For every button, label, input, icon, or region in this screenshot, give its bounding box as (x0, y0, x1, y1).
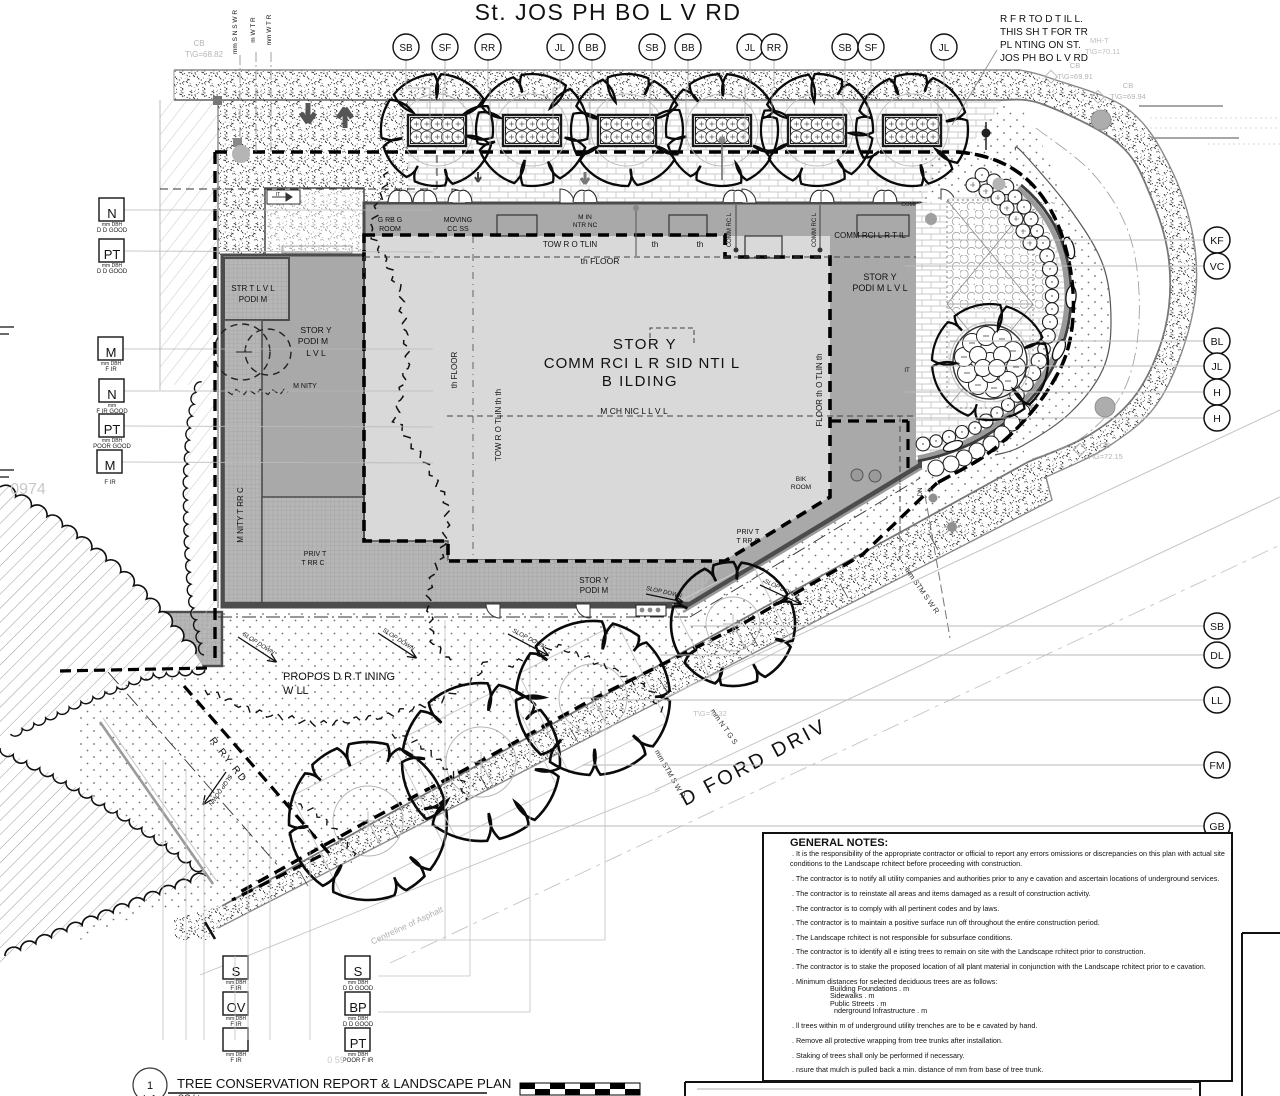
svg-text:NTR NC: NTR NC (573, 222, 598, 229)
svg-text:F IR: F IR (230, 1058, 242, 1064)
svg-text:RR: RR (481, 43, 495, 54)
svg-text:T\G=68.82: T\G=68.82 (185, 50, 224, 59)
svg-text:BP: BP (349, 1000, 366, 1015)
svg-text:KF: KF (1210, 235, 1223, 247)
svg-text:. nsure that mulch is pulled: . nsure that mulch is pulled back a min.… (792, 1065, 1043, 1074)
svg-text:T\G=7 .32: T\G=7 .32 (693, 709, 727, 718)
svg-text:BL: BL (1211, 336, 1224, 348)
svg-text:F IR: F IR (105, 367, 117, 373)
svg-text:1: 1 (147, 1080, 153, 1092)
svg-text:CB: CB (193, 39, 204, 48)
svg-text:nderground Infrastructure .: nderground Infrastructure . m (834, 1006, 927, 1015)
svg-text:. The contractor is to maintai: . The contractor is to maintain a positi… (792, 918, 1100, 927)
svg-text:RR: RR (767, 43, 781, 54)
svg-text:D D GOOD: D D GOOD (343, 986, 374, 992)
svg-text:PODI M: PODI M (298, 336, 328, 346)
svg-text:CB: CB (1100, 441, 1110, 450)
svg-text:T\G=69.94: T\G=69.94 (1110, 92, 1146, 101)
svg-text:. The contractor is to stake t: . The contractor is to stake the propose… (792, 962, 1206, 971)
svg-text:PRIV T: PRIV T (737, 529, 760, 536)
svg-text:STOR Y: STOR Y (613, 336, 677, 353)
svg-text:PODI M: PODI M (239, 295, 268, 304)
svg-text:mm S N S W R: mm S N S W R (232, 10, 239, 54)
svg-text:D D GOOD: D D GOOD (97, 269, 128, 275)
svg-text:COMM RC L: COMM RC L (812, 212, 818, 247)
svg-text:T RR C: T RR C (301, 560, 324, 567)
svg-text:th: th (697, 240, 704, 249)
svg-text:D D GOOD: D D GOOD (343, 1022, 374, 1028)
svg-text:F IR: F IR (230, 986, 242, 992)
svg-text:MOVING: MOVING (444, 217, 472, 224)
svg-text:. It is the responsibility of: . It is the responsibility of the approp… (792, 849, 1225, 858)
svg-text:. The contractor is to notify: . The contractor is to notify all utilit… (792, 874, 1219, 883)
svg-text:PROPOS D R T INING: PROPOS D R T INING (283, 671, 395, 683)
svg-text:JL: JL (939, 43, 950, 54)
svg-text:SB: SB (645, 43, 659, 54)
svg-text:T RR C: T RR C (736, 538, 759, 545)
svg-text:PODI M L V L: PODI M L V L (852, 283, 907, 293)
svg-text:F IR: F IR (230, 1022, 242, 1028)
svg-text:PT: PT (350, 1036, 367, 1051)
svg-text:M NITY: M NITY (293, 383, 317, 390)
svg-text:S: S (232, 964, 241, 979)
svg-text:SB: SB (838, 43, 852, 54)
svg-text:W LL: W LL (283, 685, 309, 697)
svg-text:T\G=72.15: T\G=72.15 (1087, 452, 1123, 461)
svg-text:. The contractor is to identif: . The contractor is to identify all e is… (792, 947, 1145, 956)
svg-text:SB: SB (1210, 621, 1224, 633)
svg-text:SF: SF (865, 43, 878, 54)
svg-text:M IN: M IN (578, 214, 592, 221)
svg-text:SF: SF (439, 43, 452, 54)
svg-text:STOR Y: STOR Y (863, 272, 896, 282)
svg-text:. Remove all protective wrappi: . Remove all protective wrapping from tr… (792, 1036, 1003, 1045)
svg-text:0974: 0974 (10, 481, 46, 498)
svg-text:BB: BB (585, 43, 599, 54)
svg-text:PODI M: PODI M (580, 586, 609, 595)
svg-text:LL: LL (1211, 695, 1223, 707)
svg-text:STOR Y: STOR Y (300, 325, 332, 335)
svg-text:B ILDING: B ILDING (602, 373, 678, 390)
svg-text:ROOM: ROOM (791, 484, 811, 491)
svg-text:M: M (106, 345, 117, 360)
svg-text:IT: IT (904, 368, 910, 374)
svg-text:THIS SH T FOR TR: THIS SH T FOR TR (1000, 27, 1088, 38)
svg-text:H: H (1213, 387, 1221, 399)
svg-text:BIK: BIK (796, 476, 807, 483)
svg-text:BB: BB (681, 43, 695, 54)
svg-text:St. JOS PH BO L V RD: St. JOS PH BO L V RD (475, 0, 742, 25)
svg-text:POOR F IR: POOR F IR (343, 1058, 374, 1064)
svg-text:TOW R O TLIN: TOW R O TLIN (543, 240, 598, 249)
svg-text:G RB G: G RB G (378, 217, 403, 224)
svg-text:. Staking of trees shall only: . Staking of trees shall only be perform… (792, 1051, 964, 1060)
svg-text:COMM RCI L R T IL: COMM RCI L R T IL (834, 231, 906, 240)
svg-text:N: N (107, 206, 116, 221)
svg-text:M CH NIC L L V L: M CH NIC L L V L (600, 406, 668, 416)
svg-text:CC SS: CC SS (447, 226, 469, 233)
svg-text:DL: DL (1210, 650, 1224, 662)
svg-text:PRIV T: PRIV T (304, 551, 327, 558)
svg-text:OV: OV (227, 1000, 246, 1015)
svg-text:N: N (107, 387, 116, 402)
svg-text:LS: LS (924, 488, 931, 494)
svg-text:L V L: L V L (306, 348, 326, 358)
svg-text:COMM RC L: COMM RC L (727, 212, 733, 247)
svg-text:POOR GOOD: POOR GOOD (93, 444, 131, 450)
svg-text:th: th (652, 240, 659, 249)
svg-text:m W T R: m W T R (250, 17, 257, 43)
svg-text:mm W T R: mm W T R (266, 14, 273, 45)
svg-text:PT: PT (104, 247, 121, 262)
svg-text:STR T L V L: STR T L V L (231, 284, 275, 293)
svg-text:DN: DN (918, 488, 924, 497)
svg-text:H: H (1213, 413, 1221, 425)
svg-text:F IR: F IR (104, 480, 116, 486)
svg-text:CB: CB (1123, 81, 1133, 90)
svg-text:JL: JL (745, 43, 756, 54)
svg-text:. The contractor is to comply: . The contractor is to comply with all p… (792, 904, 999, 913)
svg-text:. ll trees within m of und: . ll trees within m of underground utili… (792, 1021, 1037, 1030)
svg-text:0 59: 0 59 (327, 1055, 345, 1065)
svg-text:PL NTING ON ST.: PL NTING ON ST. (1000, 40, 1081, 51)
svg-text:GENERAL NOTES:: GENERAL NOTES: (790, 837, 888, 849)
svg-text:. The contractor is to reinsta: . The contractor is to reinstate all are… (792, 889, 1091, 898)
svg-text:FLOOR th O TLIN th: FLOOR th O TLIN th (815, 353, 824, 426)
svg-text:COMM RCI L R SID NTI L: COMM RCI L R SID NTI L (544, 355, 740, 372)
svg-text:R F R TO D T IL L.: R F R TO D T IL L. (1000, 14, 1083, 25)
svg-text:th FLOOR: th FLOOR (581, 256, 620, 266)
svg-text:S: S (354, 964, 363, 979)
svg-text:STOR Y: STOR Y (579, 576, 609, 585)
svg-text:. The Landscape rchitect is: . The Landscape rchitect is not responsi… (792, 933, 1012, 942)
svg-text:TREE CONSERVATION REPORT & LAN: TREE CONSERVATION REPORT & LANDSCAPE PLA… (177, 1076, 511, 1091)
svg-text:JL: JL (555, 43, 566, 54)
svg-text:th FLOOR: th FLOOR (450, 352, 459, 389)
svg-text:CB: CB (1070, 61, 1080, 70)
svg-text:IT: IT (276, 192, 280, 198)
svg-text:M NITY T RR C: M NITY T RR C (236, 487, 245, 543)
svg-text:MH-T: MH-T (1090, 36, 1109, 45)
svg-text:PT: PT (104, 422, 121, 437)
svg-text:TOW R O TLIN th th: TOW R O TLIN th th (494, 389, 503, 461)
svg-text:FM: FM (1209, 760, 1224, 772)
svg-text:conditions to the Landscape: conditions to the Landscape rchitect bef… (790, 859, 1022, 868)
svg-text:T\G=70.11: T\G=70.11 (1085, 47, 1120, 56)
svg-text:ROOM: ROOM (379, 226, 401, 233)
svg-text:SB: SB (399, 43, 413, 54)
svg-text:VC: VC (1210, 261, 1225, 273)
svg-text:D D GOOD: D D GOOD (97, 228, 128, 234)
svg-text:T\G=69.91: T\G=69.91 (1057, 72, 1093, 81)
svg-text:JL: JL (1211, 361, 1222, 373)
svg-text:M: M (105, 458, 116, 473)
svg-text:GB: GB (1209, 821, 1224, 833)
